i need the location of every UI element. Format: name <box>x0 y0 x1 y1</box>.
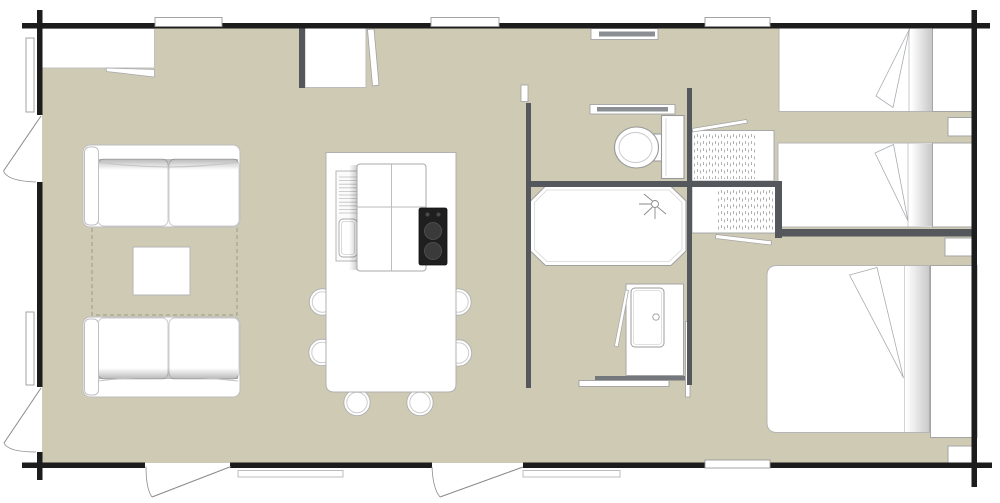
window <box>155 18 222 27</box>
cabinet-stub-wall <box>299 28 305 88</box>
headboard-shelf <box>931 266 978 438</box>
sliding-door-rail <box>595 376 685 381</box>
left-door-bottom <box>4 388 41 452</box>
left-door-top <box>4 116 42 182</box>
outside-step <box>523 471 620 478</box>
dining-chair <box>407 389 433 415</box>
sofa-armrest <box>85 147 99 225</box>
shower-divider-wall <box>530 181 782 187</box>
floorplan-drawing <box>0 0 1000 503</box>
window <box>705 18 770 27</box>
wall-shelf-top <box>591 29 658 40</box>
twin-bed-1 <box>779 28 974 112</box>
wall-left-b <box>37 182 43 387</box>
kitchen-island <box>326 153 456 393</box>
cooktop-two-burners <box>419 208 447 265</box>
hanging-clothes-texture <box>694 133 757 180</box>
wall-shelf-above-toilet <box>590 105 675 115</box>
island-cabinet-block <box>357 164 426 271</box>
burner <box>425 223 442 240</box>
shower-tray <box>531 186 687 266</box>
burner <box>425 243 442 260</box>
window <box>26 38 34 112</box>
terrace-door <box>146 467 231 498</box>
basin-drain <box>653 314 659 320</box>
sofa-top <box>83 145 240 227</box>
bedroom-divider-wall <box>778 229 977 237</box>
dining-chair <box>344 389 370 415</box>
nightstand <box>945 238 972 256</box>
nightstand <box>948 446 974 463</box>
window <box>431 18 499 27</box>
bathroom-east-wall <box>687 88 692 385</box>
cooktop-knob <box>426 213 430 217</box>
sliding-door-panel <box>579 381 669 387</box>
nightstand <box>948 118 973 137</box>
sofa-armrest <box>85 319 99 395</box>
coffee-table <box>133 247 190 295</box>
wall-bottom-b <box>230 463 432 469</box>
wall-left-a <box>37 10 43 115</box>
twin-bed-2 <box>778 143 974 227</box>
toilet-cistern <box>662 116 685 179</box>
wall-right <box>972 10 978 487</box>
cooktop-knob <box>437 213 441 217</box>
floorplan-canvas <box>0 0 1000 503</box>
outside-steps <box>238 471 620 478</box>
hanging-clothes-texture <box>717 189 775 232</box>
outside-step <box>238 471 343 478</box>
headboard-shelf <box>933 28 974 112</box>
entrance-door <box>432 467 523 497</box>
window <box>705 460 770 468</box>
bathroom-west-wall <box>526 103 531 388</box>
headboard-shelf <box>933 143 974 227</box>
double-bed <box>767 266 930 433</box>
sofa-bottom <box>83 317 240 397</box>
wall-bottom-a <box>22 463 145 469</box>
bathroom-door-leaf <box>521 85 528 102</box>
window <box>26 312 34 385</box>
